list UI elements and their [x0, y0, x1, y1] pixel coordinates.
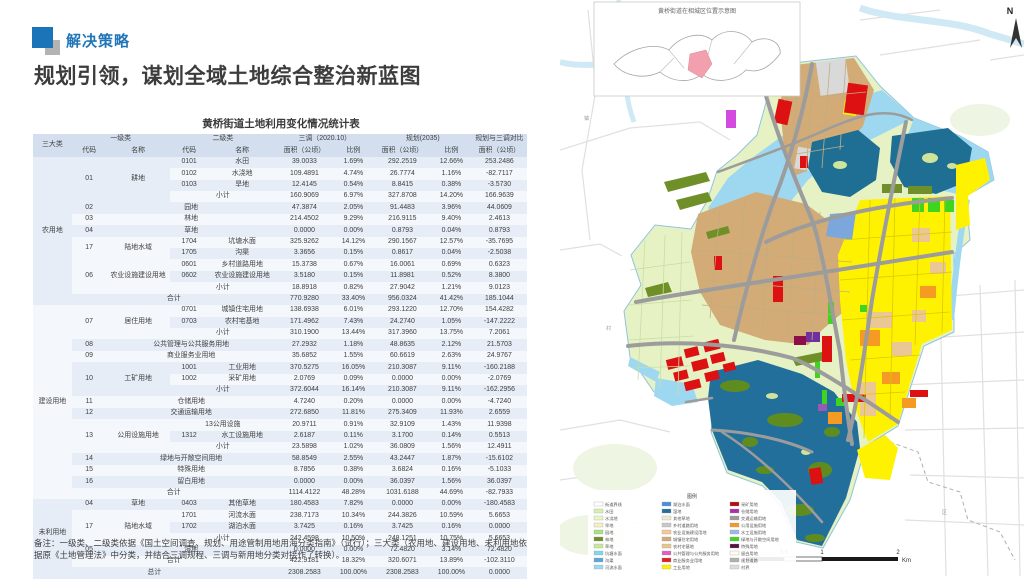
table-cell: 109.4891: [276, 168, 333, 179]
table-cell: 11.93%: [431, 408, 472, 419]
table-cell: 3.3656: [276, 248, 333, 259]
table-row: 11仓储用地4.72400.20%0.00000.00%-4.7240: [33, 396, 527, 407]
table-cell: -3.5730: [472, 180, 527, 191]
legend-label: 规划道路: [741, 557, 759, 564]
legend-label: 乡村道路用地: [673, 522, 699, 529]
table-cell: -180.4583: [472, 499, 527, 510]
table-cell: 比例: [431, 145, 472, 156]
table-cell: 农用地: [33, 157, 72, 305]
table-cell: 36.0397: [472, 476, 527, 487]
table-cell: 8.3800: [472, 271, 527, 282]
table-cell: 0102: [170, 168, 209, 179]
table-cell: 48.28%: [333, 488, 374, 499]
legend-label: 交通运输用地: [741, 515, 767, 522]
table-head: 三大类一级类二级类三调（2020.10）规划(2035)规划与三调对比代码名称代…: [33, 134, 527, 157]
table-cell: 10: [72, 362, 107, 396]
table-cell: 770.9280: [276, 294, 333, 305]
table-cell: 0.00%: [431, 374, 472, 385]
legend-label: 特殊用地: [741, 543, 759, 550]
bg-label-1: 镇: [584, 115, 589, 122]
table-cell: 0.38%: [333, 465, 374, 476]
table-cell: 0.67%: [333, 259, 374, 270]
legend-label: 商业服务业用地: [673, 557, 703, 564]
table-cell: 0.04%: [431, 248, 472, 259]
table-cell: 合计: [72, 488, 276, 499]
table-cell: 面积（公顷）: [472, 145, 527, 156]
table-cell: 7.43%: [333, 317, 374, 328]
table-cell: 1.69%: [333, 157, 374, 168]
table-row: 未利用地04草地0403其他草地180.45837.82%0.00000.00%…: [33, 499, 527, 510]
table-cell: 13: [72, 419, 107, 453]
legend-label: 仓储用地: [741, 508, 759, 515]
table-cell: 草地: [106, 499, 169, 510]
legend-label: 绿地与开敞空间用地: [741, 536, 780, 543]
table-cell: 214.4502: [276, 214, 333, 225]
table-row: 建设用地07居住用地0701城镇住宅用地138.69386.01%293.122…: [33, 305, 527, 316]
table-cell: 310.1900: [276, 328, 333, 339]
table-cell: 5.6653: [472, 510, 527, 521]
table-cell: 水田: [209, 157, 276, 168]
table-cell: 372.6044: [276, 385, 333, 396]
legend-label: 其他草地: [673, 515, 691, 522]
table-cell: 1002: [170, 374, 209, 385]
table-row: 04草地0.00000.00%0.87930.04%0.8793: [33, 225, 527, 236]
table-cell: 0.20%: [333, 396, 374, 407]
table-cell: 小计: [170, 328, 276, 339]
table-cell: 比例: [333, 145, 374, 156]
table-cell: 面积（公顷）: [276, 145, 333, 156]
table-cell: -160.2188: [472, 362, 527, 373]
table-cell: 27.9042: [374, 282, 431, 293]
table-cell: 0.0000: [276, 225, 333, 236]
legend-swatch: [662, 530, 671, 534]
table-cell: 1031.6188: [374, 488, 431, 499]
table-cell: 9.29%: [333, 214, 374, 225]
table-cell: 一级类: [72, 134, 170, 145]
legend-swatch: [594, 551, 603, 555]
table-cell: 58.8549: [276, 453, 333, 464]
table-cell: 居住用地: [106, 305, 169, 339]
table-cell: 9.11%: [431, 385, 472, 396]
legend-label: 城镇住宅用地: [673, 536, 699, 543]
table-cell: 0.8793: [374, 225, 431, 236]
table-cell: 180.4583: [276, 499, 333, 510]
table-cell: 0.00%: [333, 225, 374, 236]
table-cell: 1001: [170, 362, 209, 373]
table-cell: 0.16%: [431, 465, 472, 476]
table-row: 02园地47.38742.05%91.44833.96%44.0609: [33, 202, 527, 213]
table-cell: 特殊用地: [106, 465, 275, 476]
legend-label: 水田: [605, 508, 613, 515]
table-cell: 370.5275: [276, 362, 333, 373]
table-cell: -82.7933: [472, 488, 527, 499]
table-cell: 1.43%: [431, 419, 472, 430]
table-cell: 小计: [170, 191, 276, 202]
legend-swatch: [594, 516, 603, 520]
table-cell: 36.0397: [374, 476, 431, 487]
table-cell: -5.1033: [472, 465, 527, 476]
table-cell: 325.9262: [276, 237, 333, 248]
table-cell: 交通运输用地: [106, 408, 275, 419]
table-cell: 1705: [170, 248, 209, 259]
table-cell: 35.6852: [276, 351, 333, 362]
table-cell: 建设用地: [33, 305, 72, 499]
legend-label: 沟渠: [605, 557, 614, 564]
table-cell: 农业设施建设用地: [209, 271, 276, 282]
table-cell: 8.7856: [276, 465, 333, 476]
legend-label: 旱地: [605, 522, 614, 529]
table-cell: 二级类: [170, 134, 276, 145]
table-cell: 0103: [170, 180, 209, 191]
legend-swatch: [594, 565, 603, 569]
table-cell: 0.0000: [374, 374, 431, 385]
legend-swatch: [662, 551, 671, 555]
table-cell: 0.0000: [374, 396, 431, 407]
table-cell: 272.6850: [276, 408, 333, 419]
table-cell: 规划(2035): [374, 134, 472, 145]
table-cell: 0.0000: [276, 476, 333, 487]
table-row: 代码名称代码名称面积（公顷）比例面积（公顷）比例面积（公顷）: [33, 145, 527, 156]
table-cell: 293.1220: [374, 305, 431, 316]
table-cell: 0403: [170, 499, 209, 510]
map-svg: 镇 区 村 黄桥街道在相城区位置示意图 N 0 0.5 1 2 Km 图例 街道…: [560, 0, 1024, 576]
legend-swatch: [730, 565, 739, 569]
table-cell: -35.7695: [472, 237, 527, 248]
table-cell: 1.56%: [431, 442, 472, 453]
table-cell: 154.4282: [472, 305, 527, 316]
table-cell: 三大类: [33, 134, 72, 157]
table-cell: 18.8918: [276, 282, 333, 293]
table-cell: 小计: [170, 282, 276, 293]
table-cell: 21.5703: [472, 339, 527, 350]
table-cell: 商业服务业用地: [106, 351, 275, 362]
table-cell: 44.69%: [431, 488, 472, 499]
table-cell: 15: [72, 465, 107, 476]
table-cell: 08: [72, 339, 107, 350]
table-cell: 陆地水域: [106, 237, 169, 260]
table-row: 17陆地水域1704坑塘水面325.926214.12%290.156712.5…: [33, 237, 527, 248]
section-marker: [32, 27, 66, 61]
legend-label: 水工设施用地: [741, 529, 767, 536]
table-title: 黄桥街道土地利用变化情况统计表: [33, 114, 529, 134]
table-cell: 小计: [170, 442, 276, 453]
table-cell: 0.09%: [333, 374, 374, 385]
legend-swatch: [594, 558, 603, 562]
scale-label-1: 1: [820, 550, 824, 556]
table-row: 三大类一级类二级类三调（2020.10）规划(2035)规划与三调对比: [33, 134, 527, 145]
legend-swatch: [730, 523, 739, 527]
inset-map: 黄桥街道在相城区位置示意图: [594, 2, 800, 96]
legend-swatch: [730, 530, 739, 534]
table-cell: 60.6619: [374, 351, 431, 362]
table-cell: 农村宅基地: [209, 317, 276, 328]
legend-label: 湿地: [673, 508, 682, 515]
table-cell: 48.8635: [374, 339, 431, 350]
legend-label: 街道界线: [605, 501, 623, 508]
table-cell: 2.05%: [333, 202, 374, 213]
table-cell: 水工设施用地: [209, 431, 276, 442]
table-cell: 317.3960: [374, 328, 431, 339]
landuse-table: 三大类一级类二级类三调（2020.10）规划(2035)规划与三调对比代码名称代…: [33, 134, 527, 579]
table-cell: -147.2222: [472, 317, 527, 328]
table-cell: 仓储用地: [106, 396, 275, 407]
table-cell: 275.3409: [374, 408, 431, 419]
table-cell: 6.01%: [333, 305, 374, 316]
legend-swatch: [730, 544, 739, 548]
table-cell: 14.20%: [431, 191, 472, 202]
table-cell: 3.96%: [431, 202, 472, 213]
table-cell: 沟渠: [209, 248, 276, 259]
legend-label: 采矿用地: [741, 501, 759, 508]
table-cell: 292.2519: [374, 157, 431, 168]
table-cell: 0.00%: [333, 476, 374, 487]
legend-label: 村界: [741, 564, 750, 571]
table-cell: 43.2447: [374, 453, 431, 464]
table-cell: 林地: [106, 214, 275, 225]
table-cell: 0.16%: [431, 522, 472, 533]
table-cell: 坑塘水面: [209, 237, 276, 248]
table-cell: 253.2486: [472, 157, 527, 168]
table-cell: 0.38%: [431, 180, 472, 191]
legend-swatch: [594, 537, 603, 541]
table-cell: 13公用设施: [170, 419, 276, 430]
table-cell: 1.87%: [431, 453, 472, 464]
legend-title: 图例: [687, 493, 697, 500]
table-row: 14绿地与开敞空间用地58.85492.55%43.24471.87%-15.6…: [33, 453, 527, 464]
table-cell: 名称: [106, 145, 169, 156]
table-cell: 11.81%: [333, 408, 374, 419]
table-cell: 农业设施建设用地: [106, 259, 169, 293]
legend-label: 公用设施用地: [741, 522, 767, 529]
table-cell: 185.1044: [472, 294, 527, 305]
table-cell: 210.3087: [374, 385, 431, 396]
legend-label: 河流水面: [605, 564, 622, 571]
table-cell: 47.3874: [276, 202, 333, 213]
table-cell: 12.57%: [431, 237, 472, 248]
table-cell: 13.44%: [333, 328, 374, 339]
legend-swatch: [662, 509, 671, 513]
table-cell: 23.5898: [276, 442, 333, 453]
legend-swatch: [662, 523, 671, 527]
legend-swatch: [662, 544, 671, 548]
table-cell: 244.3826: [374, 510, 431, 521]
table-cell: 总计: [33, 567, 276, 578]
table-cell: 0.11%: [333, 431, 374, 442]
legend-swatch: [662, 565, 671, 569]
table-cell: 0601: [170, 259, 209, 270]
table-cell: 0.0000: [472, 522, 527, 533]
table-cell: 3.7425: [374, 522, 431, 533]
legend-label: 草地: [605, 543, 614, 550]
table-cell: 3.6824: [374, 465, 431, 476]
table-row: 06农业设施建设用地0601乡村道路用地15.37380.67%16.00610…: [33, 259, 527, 270]
table-cell: 16: [72, 476, 107, 487]
table-cell: 17: [72, 237, 107, 260]
table-row: 13公用设施用地13公用设施20.97110.91%32.91091.43%11…: [33, 419, 527, 430]
table-cell: 16.05%: [333, 362, 374, 373]
legend-swatch: [594, 530, 603, 534]
table-cell: 0.52%: [431, 271, 472, 282]
table-cell: 7.2061: [472, 328, 527, 339]
section-label: 解决策略: [66, 30, 130, 51]
table-cell: 327.8708: [374, 191, 431, 202]
legend-label: 园地: [605, 529, 614, 536]
table-row: 10工矿用地1001工业用地370.527516.05%210.30879.11…: [33, 362, 527, 373]
table-cell: 12.4911: [472, 442, 527, 453]
table-cell: 7.82%: [333, 499, 374, 510]
table-cell: 2.55%: [333, 453, 374, 464]
table-row: 16留白用地0.00000.00%36.03971.56%36.0397: [33, 476, 527, 487]
table-cell: 04: [72, 225, 107, 236]
table-cell: 草地: [106, 225, 275, 236]
legend-label: 留白用地: [741, 550, 759, 557]
landuse-table-wrap: 黄桥街道土地利用变化情况统计表 三大类一级类二级类三调（2020.10）规划(2…: [33, 114, 529, 579]
table-cell: 0101: [170, 157, 209, 168]
table-cell: 166.9639: [472, 191, 527, 202]
table-row: 08公共管理与公共服务用地27.29321.18%48.86352.12%21.…: [33, 339, 527, 350]
table-cell: 2.0769: [276, 374, 333, 385]
table-row: 03林地214.45029.29%216.91159.40%2.4613: [33, 214, 527, 225]
table-cell: 6.97%: [333, 191, 374, 202]
table-cell: 1702: [170, 522, 209, 533]
table-cell: 12: [72, 408, 107, 419]
table-row: 15特殊用地8.78560.38%3.68240.16%-5.1033: [33, 465, 527, 476]
table-cell: 33.40%: [333, 294, 374, 305]
legend-swatch: [730, 502, 739, 506]
table-cell: 39.0033: [276, 157, 333, 168]
table-cell: 三调（2020.10）: [276, 134, 374, 145]
scale-unit: Km: [902, 558, 911, 564]
table-cell: 3.5180: [276, 271, 333, 282]
legend-swatch: [730, 509, 739, 513]
legend-label: 农村宅基地: [673, 543, 695, 550]
table-cell: -2.5038: [472, 248, 527, 259]
bg-label-2: 区: [942, 510, 947, 516]
table-cell: 0701: [170, 305, 209, 316]
table-cell: 0.15%: [333, 271, 374, 282]
legend-swatch: [662, 502, 671, 506]
table-cell: 10.59%: [431, 510, 472, 521]
table-cell: 0.0000: [374, 499, 431, 510]
table-cell: 2308.2583: [374, 567, 431, 578]
legend-label: 水浇地: [605, 515, 618, 522]
table-cell: 24.9767: [472, 351, 527, 362]
table-cell: 27.2932: [276, 339, 333, 350]
table-cell: 1.05%: [431, 317, 472, 328]
table-cell: 8.8415: [374, 180, 431, 191]
table-cell: 4.74%: [333, 168, 374, 179]
table-row: 合计1114.412248.28%1031.618844.69%-82.7933: [33, 488, 527, 499]
table-cell: 12.70%: [431, 305, 472, 316]
table-cell: 36.0809: [374, 442, 431, 453]
table-cell: 乡村道路用地: [209, 259, 276, 270]
legend-swatch: [662, 537, 671, 541]
table-cell: 小计: [170, 385, 276, 396]
table-cell: 0.00%: [431, 499, 472, 510]
table-cell: 1.56%: [431, 476, 472, 487]
legend-swatch: [662, 558, 671, 562]
table-cell: 耕地: [106, 157, 169, 203]
table-cell: 代码: [170, 145, 209, 156]
table-cell: 290.1567: [374, 237, 431, 248]
page-title: 规划引领，谋划全域土地综合整治新蓝图: [34, 60, 421, 90]
table-cell: -82.7117: [472, 168, 527, 179]
footnote: 备注：一级类、二级类依据《国土空间调查、规划、用途管制用地用海分类指南》（试行）…: [34, 538, 534, 562]
legend-swatch: [594, 523, 603, 527]
table-cell: 采矿用地: [209, 374, 276, 385]
table-cell: 其他草地: [209, 499, 276, 510]
table-cell: 20.9711: [276, 419, 333, 430]
legend-swatch: [730, 537, 739, 541]
table-cell: 91.4483: [374, 202, 431, 213]
legend-label: 湖泊水面: [673, 501, 690, 508]
table-cell: 238.7173: [276, 510, 333, 521]
table-cell: 规划与三调对比: [472, 134, 527, 145]
table-cell: 2.4613: [472, 214, 527, 225]
table-cell: 旱地: [209, 180, 276, 191]
table-cell: 工业用地: [209, 362, 276, 373]
section-marker-blue-square: [32, 27, 53, 48]
table-cell: 1114.4122: [276, 488, 333, 499]
table-cell: 0.5513: [472, 431, 527, 442]
table-cell: 2308.2583: [276, 567, 333, 578]
legend-label: 农业设施建设用地: [673, 529, 707, 536]
map-legend: 图例 街道界线水田水浇地旱地园地林地草地坑塘水面沟渠河流水面湖泊水面湿地其他草地…: [588, 490, 796, 574]
table-cell: 园地: [106, 202, 275, 213]
table-cell: 14.12%: [333, 237, 374, 248]
inset-title: 黄桥街道在相城区位置示意图: [658, 7, 736, 15]
table-cell: 1704: [170, 237, 209, 248]
table-cell: 3.7425: [276, 522, 333, 533]
table-cell: 合计: [72, 294, 276, 305]
table-cell: 04: [72, 499, 107, 510]
table-cell: 0.15%: [333, 248, 374, 259]
table-cell: 0.69%: [431, 259, 472, 270]
table-cell: 2.63%: [431, 351, 472, 362]
legend-swatch: [730, 516, 739, 520]
table-row: 农用地01耕地0101水田39.00331.69%292.251912.66%2…: [33, 157, 527, 168]
legend-label: 公共管理与公共服务用地: [673, 550, 720, 557]
table-cell: 河流水面: [209, 510, 276, 521]
table-cell: 12.66%: [431, 157, 472, 168]
table-cell: 11.9398: [472, 419, 527, 430]
table-cell: 26.7774: [374, 168, 431, 179]
scale-label-2: 2: [896, 550, 900, 556]
table-cell: 14: [72, 453, 107, 464]
table-cell: 11.8981: [374, 271, 431, 282]
table-cell: 城镇住宅用地: [209, 305, 276, 316]
table-cell: 16.14%: [333, 385, 374, 396]
compass-n-label: N: [1007, 6, 1014, 16]
table-cell: 水浇地: [209, 168, 276, 179]
table-cell: -2.0769: [472, 374, 527, 385]
table-cell: 面积（公顷）: [374, 145, 431, 156]
legend-swatch: [730, 551, 739, 555]
table-cell: 03: [72, 214, 107, 225]
legend-swatch: [594, 509, 603, 513]
table-cell: 210.3087: [374, 362, 431, 373]
table-cell: 2.12%: [431, 339, 472, 350]
table-cell: 0.04%: [431, 225, 472, 236]
table-cell: 216.9115: [374, 214, 431, 225]
legend-label: 坑塘水面: [605, 550, 622, 557]
table-cell: 代码: [72, 145, 107, 156]
table-cell: 32.9109: [374, 419, 431, 430]
table-cell: 0.00%: [431, 396, 472, 407]
table-cell: 07: [72, 305, 107, 339]
table-cell: 0.14%: [431, 431, 472, 442]
table-cell: 1.02%: [333, 442, 374, 453]
